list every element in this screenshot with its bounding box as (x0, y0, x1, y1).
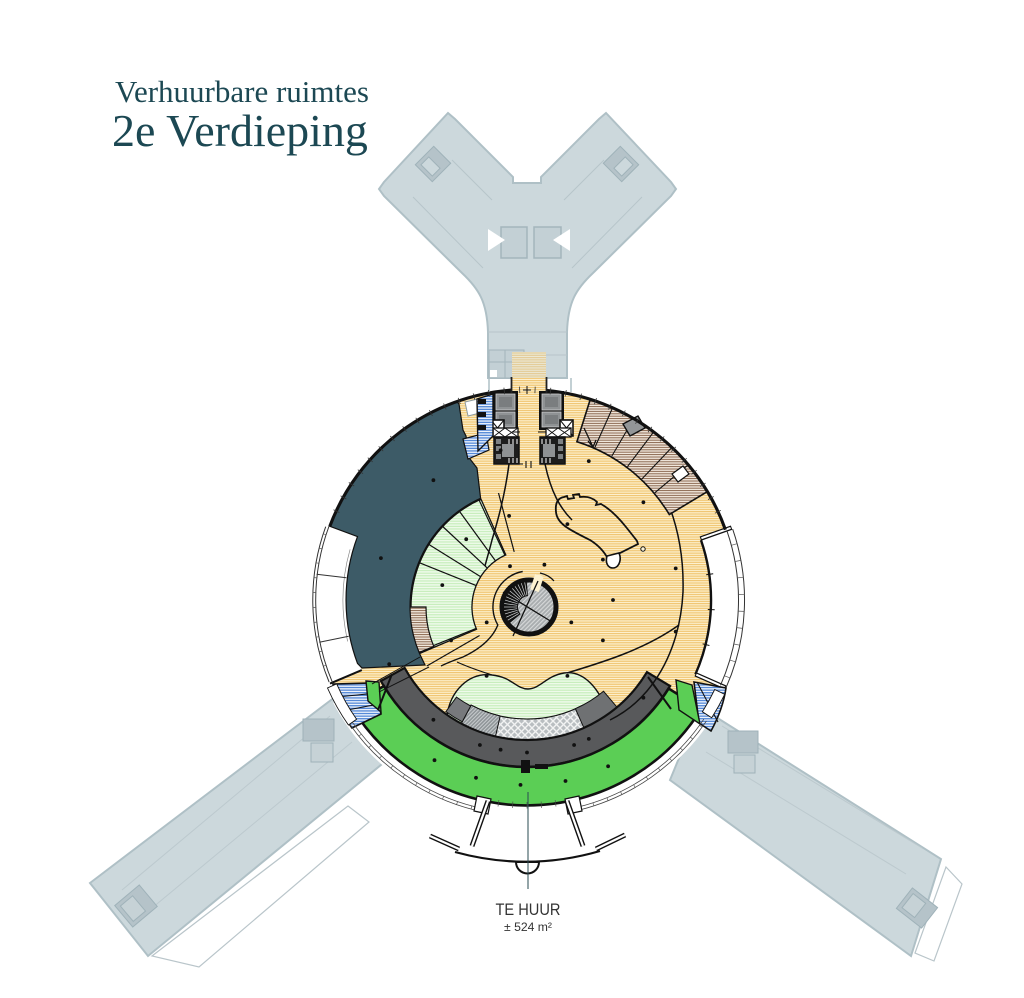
svg-text:± 524 m²: ± 524 m² (504, 920, 552, 934)
svg-text:Verhuurbare ruimtes: Verhuurbare ruimtes (115, 74, 369, 109)
svg-text:2e Verdieping: 2e Verdieping (112, 105, 368, 156)
svg-text:TE HUUR: TE HUUR (496, 901, 561, 919)
